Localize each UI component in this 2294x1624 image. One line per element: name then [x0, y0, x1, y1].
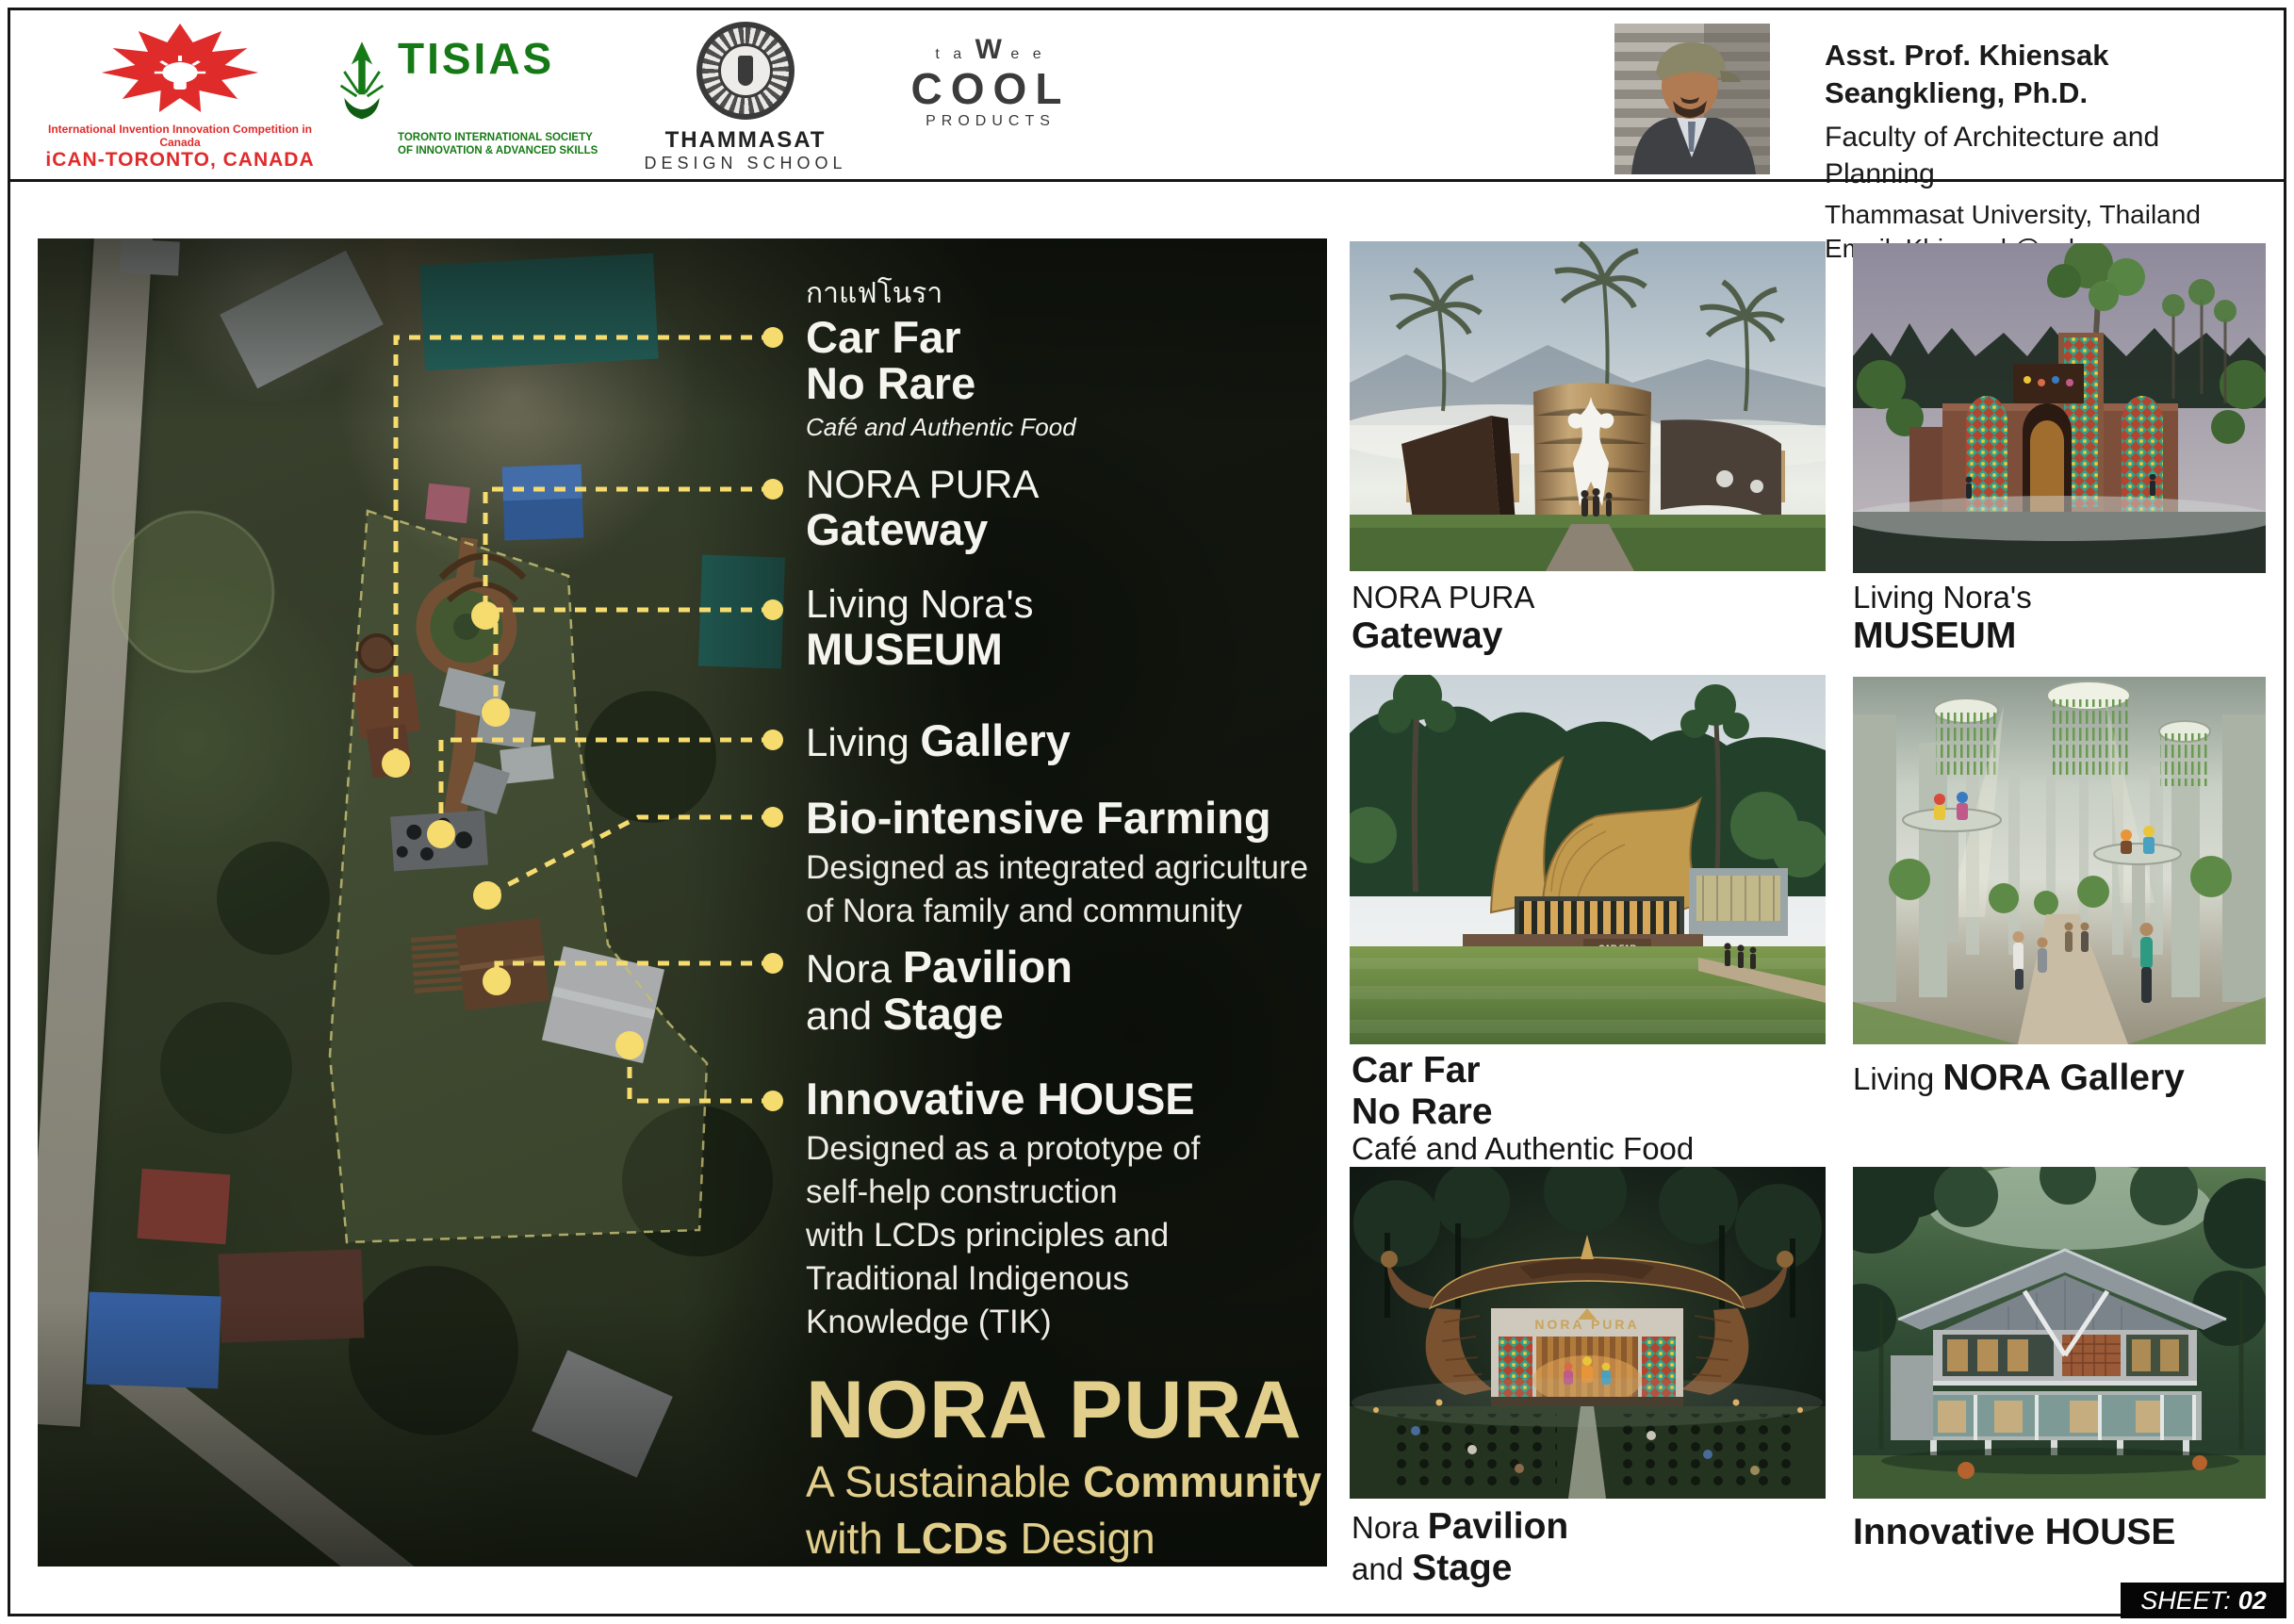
caption-bold: Pavilion — [1428, 1506, 1569, 1547]
caption-pre: NORA PURA — [1352, 581, 1534, 615]
sheet-number-badge: SHEET: 02 — [2121, 1583, 2286, 1618]
tisias-logo: TISIAS TORONTO INTERNATIONAL SOCIETY OF … — [336, 37, 609, 158]
tawee-cool-logo: t a W e e COOL PRODUCTS — [887, 34, 1094, 130]
author-university: Thammasat University, Thailand — [1825, 198, 2277, 232]
thammasat-line1: THAMMASAT — [637, 127, 854, 154]
tisias-name: TISIAS — [398, 37, 554, 80]
label-bold: MUSEUM — [806, 626, 1033, 672]
label-desc: Knowledge (TIK) — [806, 1301, 1200, 1344]
label-desc: Designed as a prototype of — [806, 1127, 1200, 1171]
caption-pre: Living — [1853, 1061, 1942, 1096]
author-info: Asst. Prof. Khiensak Seangklieng, Ph.D. … — [1825, 37, 2277, 266]
pavilion-sign: NORA PURA — [1534, 1317, 1639, 1332]
map-label-museum: Living Nora's MUSEUM — [806, 582, 1033, 673]
tawee-main: COOL — [887, 66, 1094, 111]
thammasat-line2: DESIGN SCHOOL — [637, 154, 854, 173]
label-pre: NORA PURA — [806, 463, 1039, 506]
header: International Invention Innovation Compe… — [10, 10, 2284, 179]
presentation-board: International Invention Innovation Compe… — [0, 0, 2294, 1624]
ican-name: iCAN-TORONTO, CANADA — [29, 149, 331, 172]
innovative-house-render-image — [1853, 1167, 2266, 1499]
thammasat-logo: THAMMASAT DESIGN SCHOOL — [637, 22, 854, 173]
map-label-gallery: Living Gallery — [806, 717, 1071, 764]
caption-bold: MUSEUM — [1853, 615, 2016, 656]
title-sub-bold: LCDs — [895, 1514, 1008, 1563]
nora-gallery-render-image — [1853, 677, 2266, 1044]
caption-nora-gallery: Living NORA Gallery — [1853, 1058, 2185, 1099]
map-label-innovative-house: Innovative HOUSE Designed as a prototype… — [806, 1075, 1200, 1344]
caption-pre: Nora — [1352, 1510, 1428, 1545]
map-label-gateway: NORA PURA Gateway — [806, 463, 1039, 553]
label-bold: Innovative HOUSE — [806, 1075, 1200, 1122]
label-line: No Rare — [806, 360, 1076, 406]
museum-render-image — [1853, 243, 2266, 573]
gateway-render-image — [1350, 241, 1826, 571]
carfar-cafe-render-image: CAR FAR NO RAE — [1350, 675, 1826, 1044]
label-pre: Living Nora's — [806, 582, 1033, 626]
caption-bold: Car Far — [1352, 1050, 1481, 1091]
caption-sub: Café and Authentic Food — [1352, 1132, 1694, 1167]
ican-tagline: International Invention Innovation Compe… — [29, 123, 331, 149]
title-sub: with — [806, 1514, 895, 1563]
label-bold: Gateway — [806, 506, 1039, 552]
thai-label: กาแฟโนรา — [806, 278, 1076, 311]
tisias-tagline-1: TORONTO INTERNATIONAL SOCIETY — [398, 131, 609, 144]
label-desc: of Nora family and community — [806, 890, 1308, 933]
tisias-tagline-2: OF INNOVATION & ADVANCED SKILLS — [398, 144, 609, 157]
label-bold: Stage — [883, 989, 1004, 1039]
caption-bold: Gateway — [1352, 615, 1502, 656]
tawee-sub: PRODUCTS — [887, 113, 1094, 130]
thammasat-seal-icon — [696, 22, 795, 120]
aerial-site-map: กาแฟโนรา Car Far No Rare Café and Authen… — [38, 238, 1327, 1567]
title-sub-bold: Community — [1083, 1457, 1321, 1506]
map-label-farming: Bio-intensive Farming Designed as integr… — [806, 795, 1308, 933]
author-name: Asst. Prof. Khiensak Seangklieng, Ph.D. — [1825, 37, 2277, 113]
sheet-number: 02 — [2238, 1586, 2267, 1616]
pavilion-stage-render-image: NORA PURA — [1350, 1167, 1826, 1499]
caption-pre: Living Nora's — [1853, 581, 2032, 615]
maple-leaf-icon — [100, 22, 260, 116]
map-label-pavilion-stage: Nora Pavilion and Stage — [806, 943, 1073, 1038]
label-desc: with LCDs principles and — [806, 1214, 1200, 1257]
caption-bold: No Rare — [1352, 1091, 1493, 1132]
project-title: NORA PURA A Sustainable Community with L… — [806, 1370, 1327, 1567]
render-gallery: CAR FAR NO RAE — [1350, 241, 2266, 1599]
author-portrait-image — [1614, 24, 1770, 174]
label-bold: Pavilion — [903, 942, 1073, 992]
caption-bold: Stage — [1412, 1548, 1512, 1588]
label-desc: Designed as integrated agriculture — [806, 846, 1308, 890]
caption-gateway: NORA PURA Gateway — [1352, 581, 1534, 657]
project-title-main: NORA PURA — [806, 1370, 1327, 1451]
caption-carfar: Car Far No Rare Café and Authentic Food — [1352, 1050, 1694, 1167]
map-label-car-far-no-rare: กาแฟโนรา Car Far No Rare Café and Authen… — [806, 278, 1076, 442]
tawee-post: e e — [1002, 46, 1046, 62]
caption-museum: Living Nora's MUSEUM — [1853, 581, 2032, 657]
label-desc: Traditional Indigenous — [806, 1257, 1200, 1301]
ican-logo: International Invention Innovation Compe… — [29, 22, 331, 172]
label-line: Car Far — [806, 314, 1076, 360]
caption-pre: and — [1352, 1551, 1412, 1586]
title-sub: A Sustainable — [806, 1457, 1083, 1506]
caption-house: Innovative HOUSE — [1853, 1512, 2175, 1553]
tawee-w: W — [975, 34, 1002, 65]
caption-bold: NORA Gallery — [1942, 1058, 2184, 1098]
sheet-label: SHEET: — [2140, 1586, 2231, 1616]
caption-pavilion: Nora Pavilion and Stage — [1352, 1506, 1568, 1588]
label-pre: Living — [806, 720, 920, 764]
label-pre: and — [806, 993, 883, 1038]
label-bold: Bio-intensive Farming — [806, 795, 1308, 841]
sprout-arrow-icon — [336, 37, 388, 131]
tawee-pre: t a — [935, 46, 975, 62]
map-labels: กาแฟโนรา Car Far No Rare Café and Authen… — [38, 238, 1327, 1567]
author-photo — [1614, 24, 1770, 174]
label-bold: Gallery — [920, 715, 1070, 765]
label-subtitle: Café and Authentic Food — [806, 413, 1076, 442]
header-divider — [10, 179, 2284, 182]
label-pre: Nora — [806, 946, 903, 991]
caption-bold: Innovative HOUSE — [1853, 1512, 2175, 1552]
label-desc: self-help construction — [806, 1171, 1200, 1214]
